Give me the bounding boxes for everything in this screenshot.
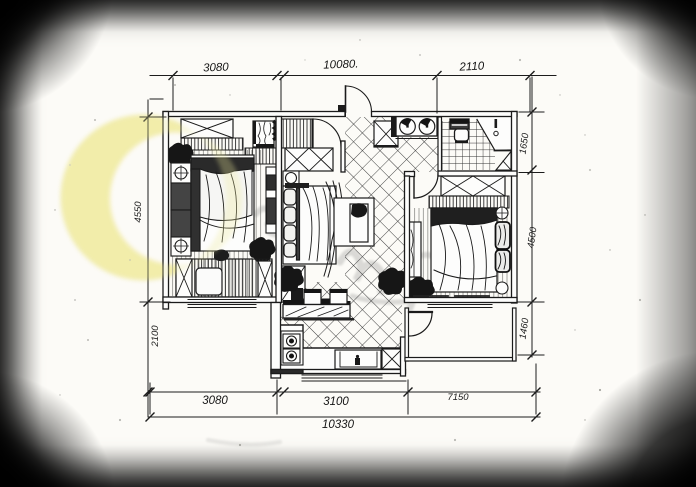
svg-text:3080: 3080 bbox=[203, 62, 230, 75]
svg-text:10080.: 10080. bbox=[323, 58, 359, 71]
svg-text:3080: 3080 bbox=[202, 395, 228, 407]
svg-text:1460: 1460 bbox=[518, 317, 532, 340]
svg-text:2110: 2110 bbox=[458, 60, 485, 73]
svg-text:4550: 4550 bbox=[133, 201, 144, 223]
svg-text:1650: 1650 bbox=[518, 132, 532, 155]
svg-text:4500: 4500 bbox=[526, 226, 540, 249]
svg-text:2100: 2100 bbox=[150, 325, 161, 348]
svg-text:10330: 10330 bbox=[322, 419, 355, 431]
svg-text:7150: 7150 bbox=[447, 392, 469, 403]
svg-text:3100: 3100 bbox=[323, 396, 349, 408]
